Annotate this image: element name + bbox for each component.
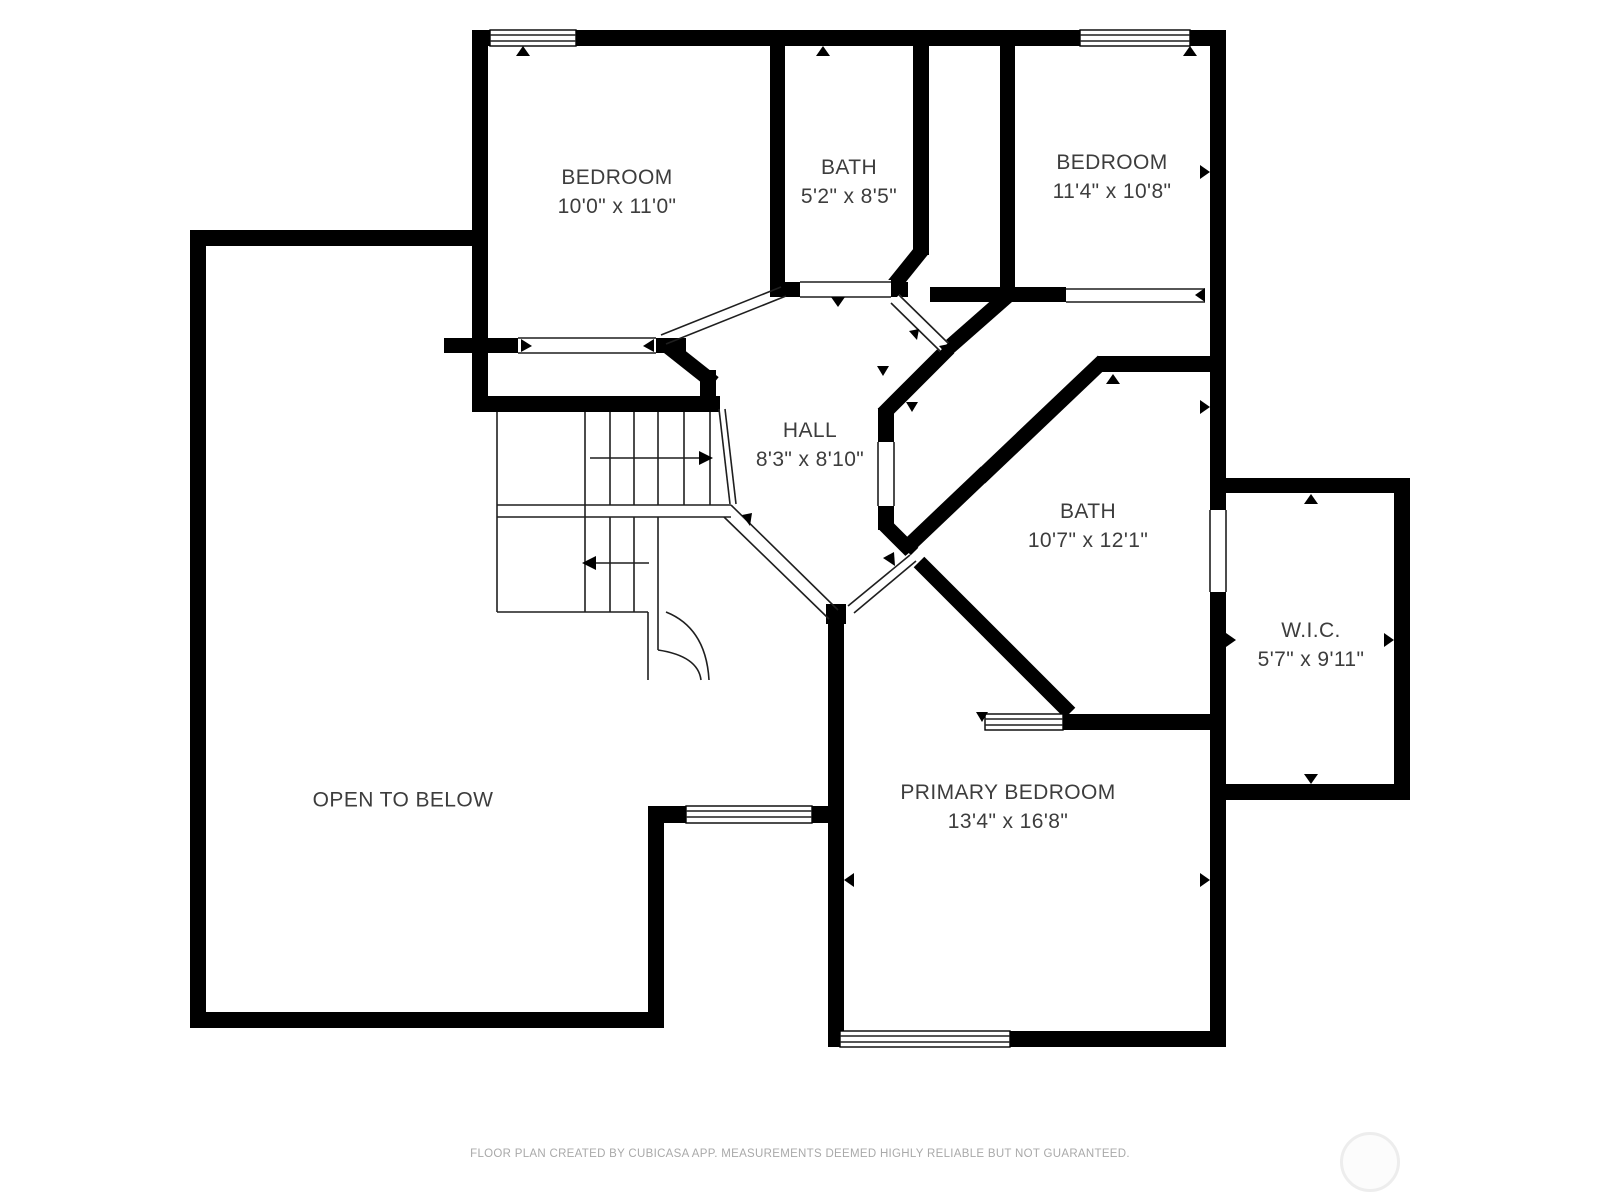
room-dims: 10'7" x 12'1" (1028, 526, 1148, 555)
marker-wic-bottom (1304, 774, 1318, 784)
stair-railing (724, 505, 838, 619)
marker-bathmain-top (1106, 374, 1120, 384)
room-dims: 11'4" x 10'8" (1053, 177, 1172, 206)
marker-bathmain-right (1200, 400, 1210, 414)
stair-up-arrow-icon (590, 451, 713, 465)
room-label-hall: HALL 8'3" x 8'10" (756, 416, 864, 474)
room-dims: 13'4" x 16'8" (900, 807, 1115, 836)
room-dims: 5'7" x 9'11" (1258, 645, 1365, 674)
room-name: PRIMARY BEDROOM (900, 781, 1115, 804)
window-bedroom-top-left (490, 30, 576, 46)
marker-wic-top (1304, 494, 1318, 504)
window-bedroom-top-right (1080, 30, 1190, 46)
room-name: W.I.C. (1281, 619, 1341, 642)
room-dims: 5'2" x 8'5" (801, 182, 897, 211)
room-name: BEDROOM (561, 166, 672, 189)
room-label-wic: W.I.C. 5'7" x 9'11" (1258, 616, 1365, 674)
room-dims: 10'0" x 11'0" (558, 192, 677, 221)
room-name: HALL (783, 419, 837, 442)
marker-primary-left (844, 873, 854, 887)
room-label-bedroom-top-left: BEDROOM 10'0" x 11'0" (558, 163, 677, 221)
marker-bath-top (816, 46, 830, 56)
room-label-primary-bedroom: PRIMARY BEDROOM 13'4" x 16'8" (900, 778, 1115, 836)
marker-bedroom2-right (1200, 165, 1210, 179)
room-label-bedroom-top-right: BEDROOM 11'4" x 10'8" (1053, 148, 1172, 206)
window-primary-top (985, 714, 1063, 730)
marker-primary-right (1200, 873, 1210, 887)
room-name: OPEN TO BELOW (313, 789, 494, 812)
room-label-bath-main: BATH 10'7" x 12'1" (1028, 497, 1148, 555)
marker-bedroom2-top (1183, 46, 1197, 56)
room-label-open-to-below: OPEN TO BELOW (313, 786, 494, 815)
marker-wic-right (1384, 633, 1394, 647)
marker-wic-door (1226, 633, 1236, 647)
marker-bedroom1-top (516, 46, 530, 56)
watermark-logo-icon (1340, 1132, 1400, 1192)
marker-vestibule-door-a (909, 329, 919, 340)
room-name: BEDROOM (1056, 151, 1167, 174)
room-label-bath-top: BATH 5'2" x 8'5" (801, 153, 897, 211)
room-name: BATH (1060, 500, 1116, 523)
room-dims: 8'3" x 8'10" (756, 445, 864, 474)
window-open-below-wall (686, 806, 812, 823)
marker-primary-entry (883, 552, 895, 566)
marker-bathmain-top-left (877, 366, 889, 376)
stair-down-arrow-icon (582, 556, 649, 570)
marker-bedroom2-opening (1195, 288, 1205, 302)
floor-plan-page: BEDROOM 10'0" x 11'0" BATH 5'2" x 8'5" B… (0, 0, 1600, 1200)
room-name: BATH (821, 156, 877, 179)
window-primary-bottom (840, 1031, 1010, 1047)
marker-bathmain-door (906, 402, 918, 412)
marker-bath-door (831, 297, 845, 307)
